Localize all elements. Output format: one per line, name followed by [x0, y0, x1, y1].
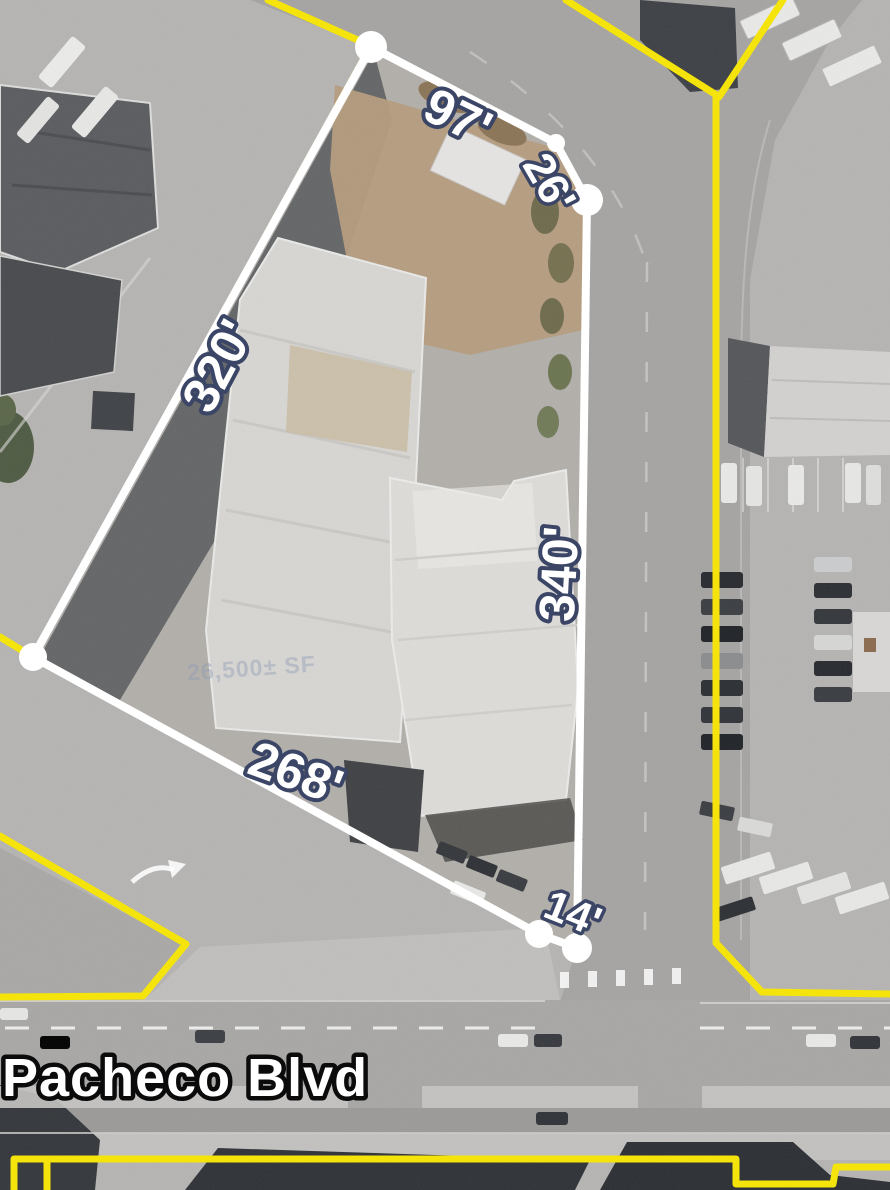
satellite-parcel-map: 26,500± SF 97' 26' 320' 340' 268' 14' Pa… — [0, 0, 890, 1190]
measurement-label-east: 340' — [529, 525, 590, 623]
street-name-group: Pacheco Blvd — [2, 1048, 368, 1108]
vertex-dot — [19, 643, 47, 671]
aerial-photo: 26,500± SF 97' 26' 320' 340' 268' 14' Pa… — [0, 0, 890, 1190]
photo-grain — [0, 0, 890, 1190]
vertex-dot — [355, 31, 387, 63]
street-name-label: Pacheco Blvd — [2, 1048, 368, 1108]
